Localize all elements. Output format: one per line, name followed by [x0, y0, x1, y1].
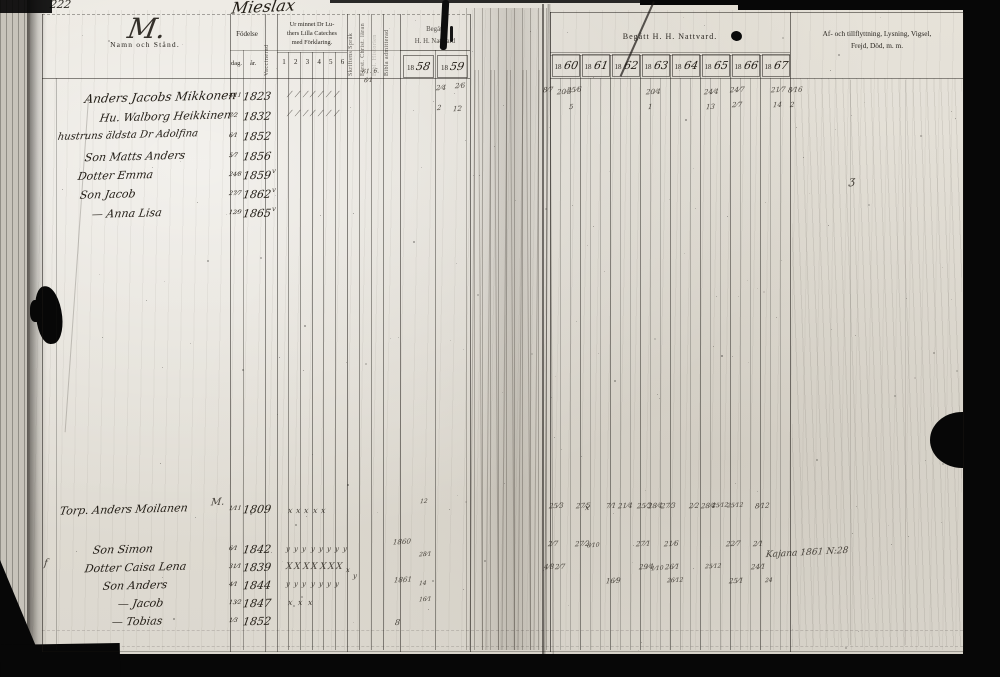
- scan-corner-top-left: [0, 0, 52, 13]
- paper-speck: [693, 168, 694, 169]
- person-name: Son Simon: [92, 542, 154, 557]
- register-row: Torp. Anders Moilanen1⁄111809: [0, 503, 470, 521]
- paper-speck: [614, 380, 616, 382]
- paper-speck: [568, 605, 569, 606]
- handwritten-mark: 1861: [394, 576, 413, 585]
- paper-speck: [353, 213, 354, 214]
- person-name: Anders Jacobs Mikkonen: [84, 88, 238, 106]
- handwritten-mark: 61. 6.: [362, 68, 380, 76]
- handwritten-mark: 1860: [393, 538, 412, 547]
- handwritten-mark: 25⁄3: [549, 502, 564, 511]
- year-printed-prefix: 18: [705, 63, 712, 71]
- paper-speck: [757, 491, 758, 492]
- handwritten-mark: 27⁄1: [636, 540, 651, 549]
- birth-day-subheader: dag.: [231, 60, 242, 67]
- register-row: Son Jacob27⁄71862: [0, 188, 470, 206]
- handwritten-mark: 2⁄7: [548, 540, 559, 549]
- handwritten-mark: 22⁄7: [726, 540, 741, 549]
- paper-speck: [695, 208, 696, 209]
- column-line: [780, 78, 781, 650]
- handwritten-mark: 13: [706, 103, 716, 111]
- birth-year-subheader: år.: [250, 60, 256, 67]
- rule-line: [42, 651, 963, 652]
- person-name: Son Anders: [102, 578, 168, 593]
- paper-speck: [554, 437, 555, 438]
- paper-speck: [473, 175, 474, 176]
- paper-speck: [109, 102, 110, 103]
- paper-speck: [146, 300, 147, 301]
- paper-speck: [494, 146, 495, 147]
- handwritten-mark: X: [302, 562, 309, 572]
- paper-speck: [855, 335, 856, 336]
- handwritten-mark: f: [44, 558, 49, 569]
- rule-line: [277, 52, 347, 53]
- handwritten-mark: x: [296, 506, 301, 515]
- year-cell: 1861: [582, 54, 610, 77]
- birth-year: 1852: [242, 130, 272, 144]
- year-printed-prefix: 18: [615, 63, 622, 71]
- binder-clip-left-tail: [30, 300, 42, 322]
- handwritten-mark: 2: [790, 101, 795, 109]
- register-row: Anders Jacobs Mikkonen4⁄111823: [0, 90, 470, 108]
- column-line: [580, 55, 581, 650]
- register-row: Son Matts Anders5⁄71856: [0, 150, 470, 168]
- handwritten-mark: 26⁄12: [667, 577, 684, 585]
- paper-speck: [479, 175, 480, 176]
- person-name: — Tobias: [111, 614, 164, 628]
- paper-speck: [421, 167, 422, 168]
- handwritten-mark: 21⁄4: [618, 502, 633, 511]
- paper-speck: [336, 567, 337, 568]
- year-handwritten-digits: 63: [652, 56, 670, 76]
- paper-speck: [282, 561, 283, 562]
- year-handwritten-digits: 67: [772, 56, 790, 76]
- communion-column-header-right: Begått H. H. Nattvard.: [560, 32, 780, 41]
- birth-day: 7⁄2: [228, 112, 238, 119]
- paper-speck: [659, 398, 660, 399]
- scanned-register-page: 222 Mieslax M. Namn och Stånd. Födelse d…: [0, 0, 1000, 677]
- handwritten-mark: 16⁄9: [606, 577, 621, 586]
- handwritten-mark: y: [327, 580, 332, 588]
- handwritten-mark: y: [353, 572, 358, 580]
- birth-day: 12⁄9: [228, 209, 242, 216]
- handwritten-mark: 5: [569, 103, 574, 111]
- handwritten-mark: 6⁄1: [364, 77, 373, 84]
- column-line: [905, 80, 906, 645]
- handwritten-mark: x: [298, 598, 303, 607]
- paper-speck: [275, 195, 276, 196]
- column-line: [640, 55, 641, 650]
- paper-speck: [162, 367, 163, 368]
- rule-line: [400, 50, 470, 51]
- paper-speck: [704, 25, 705, 26]
- paper-speck: [551, 397, 552, 398]
- register-row: Dotter Emma24⁄81859: [0, 169, 470, 187]
- paper-speck: [894, 395, 896, 397]
- column-line: [770, 78, 771, 650]
- handwritten-mark: 27⁄3: [661, 502, 676, 511]
- birth-day: 27⁄7: [228, 190, 242, 197]
- year-cell: 1865: [702, 54, 730, 77]
- paper-speck: [920, 135, 922, 137]
- handwritten-mark: 28⁄1: [419, 551, 432, 559]
- paper-speck: [456, 263, 457, 264]
- paper-speck: [413, 241, 415, 243]
- handwritten-mark: y: [327, 545, 332, 553]
- rotated-column-header: Först. Christ. läran: [360, 16, 366, 76]
- register-row: — Anna Lisa12⁄91865: [0, 207, 470, 225]
- handwritten-mark: 24⁄1: [751, 563, 766, 572]
- handwritten-mark: x: [288, 598, 293, 607]
- removals-column-header: Af- och tillflyttning, Lysning, Vigsel, …: [797, 28, 957, 53]
- birth-column-header: Födelse: [228, 30, 266, 38]
- year-handwritten-digits: 60: [562, 56, 580, 76]
- handwritten-mark: x: [308, 598, 313, 607]
- paper-speck: [868, 204, 870, 206]
- year-handwritten-digits: 58: [414, 57, 432, 77]
- paper-speck: [645, 490, 646, 491]
- handwritten-mark: 2⁄2: [689, 502, 700, 511]
- handwritten-mark: x: [304, 506, 309, 515]
- birth-year: 1832: [242, 110, 272, 124]
- rule-line: [550, 78, 963, 79]
- paper-speck: [180, 161, 181, 162]
- year-printed-prefix: 18: [441, 64, 448, 72]
- column-line: [620, 78, 621, 650]
- handwritten-mark: y: [286, 580, 291, 588]
- column-line: [590, 78, 591, 650]
- handwritten-mark: 8: [395, 618, 401, 627]
- paper-speck: [747, 280, 748, 281]
- year-cell: 1860: [552, 54, 580, 77]
- rule-line: [42, 14, 470, 15]
- birth-day: 1⁄3: [228, 617, 238, 624]
- year-printed-prefix: 18: [407, 64, 414, 72]
- fold-line-1: [542, 4, 544, 654]
- paper-speck: [277, 414, 278, 415]
- birth-day: 6⁄1: [228, 545, 238, 552]
- scan-edge-top-mid: [640, 0, 740, 5]
- paper-speck: [260, 257, 262, 259]
- person-name: Dotter Caisa Lena: [84, 560, 188, 576]
- paper-speck: [763, 291, 765, 293]
- paper-speck: [735, 483, 736, 484]
- handwritten-mark: x: [288, 506, 293, 515]
- handwritten-mark: 14: [419, 580, 427, 587]
- handwritten-mark: 20⁄4: [646, 88, 661, 97]
- rotated-column-header: Bibla admitterad: [384, 16, 390, 76]
- column-line: [850, 80, 851, 645]
- birth-year: 1859: [242, 169, 272, 183]
- handwritten-mark: x: [585, 503, 590, 512]
- handwritten-mark: 8⁄10: [587, 542, 600, 550]
- handwritten-mark: X: [311, 562, 318, 572]
- handwritten-mark: 7⁄1: [606, 502, 617, 511]
- year-handwritten-digits: 61: [592, 56, 610, 76]
- handwritten-mark: 12: [420, 498, 428, 505]
- year-cell: 1867: [762, 54, 790, 77]
- handwritten-mark: 2⁄7: [555, 563, 566, 572]
- handwritten-mark: y: [310, 545, 315, 553]
- paper-speck: [638, 650, 639, 651]
- catechism-subcolumn-number: 2: [290, 58, 301, 66]
- year-printed-prefix: 18: [555, 63, 562, 71]
- register-row: hustruns äldsta Dr Adolfina6⁄11852: [0, 130, 470, 148]
- paper-speck: [304, 325, 306, 327]
- handwritten-mark: y: [318, 580, 323, 588]
- binder-clip-right: [930, 412, 1000, 468]
- handwritten-mark: v: [272, 205, 277, 213]
- birth-day: 6⁄1: [228, 132, 238, 139]
- catechism-column-header: Ur minnet Dr Lu- thers Lilla Cateches me…: [277, 20, 347, 47]
- catechism-subcolumn-number: 6: [337, 58, 348, 66]
- handwritten-mark: 25⁄12: [705, 563, 722, 571]
- column-line: [550, 12, 551, 652]
- birth-year: 1865: [242, 207, 272, 221]
- catechism-subcolumn-number: 3: [302, 58, 313, 66]
- handwritten-mark: 24: [765, 577, 773, 584]
- handwritten-mark: 24⁄7: [730, 86, 745, 95]
- paper-speck: [433, 101, 434, 102]
- paper-speck: [449, 509, 450, 510]
- person-name: Dotter Emma: [77, 168, 154, 183]
- year-handwritten-digits: 59: [448, 57, 466, 77]
- handwritten-mark: 16⁄1: [419, 596, 432, 604]
- paper-speck: [415, 20, 416, 21]
- handwritten-mark: 8⁄12: [755, 502, 770, 511]
- column-line: [760, 55, 761, 650]
- birth-day: 24⁄8: [228, 171, 242, 178]
- paper-speck: [450, 340, 451, 341]
- birth-year: 1856: [242, 150, 272, 164]
- person-name: Hu. Walborg Heikkinen: [99, 108, 232, 124]
- paper-speck: [112, 136, 113, 137]
- register-row: — Jacob13⁄21847: [0, 597, 470, 615]
- handwritten-mark: 1: [648, 103, 653, 111]
- paper-speck: [164, 281, 165, 282]
- rule-line: [42, 78, 470, 79]
- paper-speck: [845, 647, 847, 649]
- handwritten-mark: 25⁄12: [727, 502, 744, 510]
- scan-edge-right: [963, 0, 1000, 677]
- handwritten-mark: 14: [773, 101, 783, 109]
- birth-year: 1823: [242, 90, 272, 104]
- scan-edge-top-right: [738, 0, 1000, 10]
- birth-year: 1844: [242, 579, 272, 593]
- year-cell: 1858: [403, 55, 434, 78]
- paper-speck: [543, 570, 544, 571]
- paper-speck: [654, 338, 656, 340]
- column-line: [610, 55, 611, 650]
- rule-line: [550, 12, 963, 13]
- birth-year: 1862: [242, 188, 272, 202]
- person-name: hustruns äldsta Dr Adolfina: [57, 128, 199, 143]
- name-column-header: Namn och Stånd.: [75, 40, 215, 49]
- column-line: [630, 78, 631, 650]
- year-cell: 1866: [732, 54, 760, 77]
- birth-year: 1847: [242, 597, 272, 611]
- handwritten-mark: X: [286, 562, 293, 572]
- paper-speck: [530, 31, 531, 32]
- birth-year: 1809: [242, 503, 272, 517]
- paper-speck: [253, 159, 254, 160]
- handwritten-mark: 2: [437, 104, 442, 112]
- handwritten-mark: M.: [210, 497, 224, 509]
- year-printed-prefix: 18: [585, 63, 592, 71]
- year-cell: 1859: [437, 55, 468, 78]
- person-name: — Anna Lisa: [91, 206, 163, 221]
- year-cell: 1864: [672, 54, 700, 77]
- paper-speck: [657, 394, 658, 395]
- handwritten-mark: ⁄: [304, 90, 306, 99]
- birth-day: 13⁄2: [228, 599, 242, 606]
- handwritten-mark: 21⁄6: [664, 540, 679, 549]
- register-row: Hu. Walborg Heikkinen7⁄21832: [0, 110, 470, 128]
- birth-year: 1842: [242, 543, 272, 557]
- year-cell: 1863: [642, 54, 670, 77]
- birth-day: 4⁄1: [228, 581, 238, 588]
- paper-speck: [891, 544, 892, 545]
- column-line: [670, 55, 671, 650]
- paper-speck: [253, 95, 254, 96]
- handwritten-mark: 2⁄6: [455, 82, 466, 91]
- handwritten-mark: 8⁄7: [543, 86, 554, 95]
- paper-speck: [99, 274, 100, 275]
- catechism-subcolumn-number: 1: [279, 58, 290, 66]
- paper-speck: [738, 296, 739, 297]
- paper-speck: [955, 118, 956, 119]
- handwritten-mark: v: [272, 167, 277, 175]
- paper-speck: [504, 483, 505, 484]
- column-line: [963, 12, 964, 652]
- paper-speck: [312, 454, 313, 455]
- person-name: Son Jacob: [79, 187, 137, 201]
- column-line: [570, 78, 571, 650]
- birth-day: 5⁄7: [228, 152, 238, 159]
- year-handwritten-digits: 65: [712, 56, 730, 76]
- person-name: — Jacob: [117, 596, 164, 610]
- scan-corner-bottom-left-2: [0, 643, 120, 677]
- handwritten-mark: 2⁄4: [436, 84, 447, 93]
- handwritten-mark: y: [318, 545, 323, 553]
- paper-speck: [226, 214, 227, 215]
- column-line: [730, 55, 731, 650]
- handwritten-mark: ⁄: [304, 109, 306, 118]
- person-name: Son Matts Anders: [84, 149, 186, 165]
- birth-day: 4⁄11: [228, 92, 242, 99]
- paper-speck: [914, 377, 916, 379]
- paper-speck: [604, 271, 605, 272]
- paper-speck: [413, 110, 414, 111]
- paper-speck: [716, 296, 717, 297]
- handwritten-mark: x: [312, 506, 317, 515]
- year-handwritten-digits: 66: [742, 56, 760, 76]
- paper-speck: [942, 267, 943, 268]
- handwritten-mark: x: [346, 566, 351, 574]
- year-printed-prefix: 18: [765, 63, 772, 71]
- column-line: [600, 78, 601, 650]
- handwritten-mark: ʒ: [848, 174, 855, 187]
- rotated-column-header: Skriftens Språk: [348, 16, 354, 76]
- year-handwritten-digits: 64: [682, 56, 700, 76]
- year-printed-prefix: 18: [735, 63, 742, 71]
- handwritten-mark: X: [319, 562, 326, 572]
- year-printed-prefix: 18: [645, 63, 652, 71]
- paper-speck: [182, 44, 183, 45]
- ink-smudge-gutter-top-2: [450, 26, 453, 42]
- year-handwritten-digits: 62: [622, 56, 640, 76]
- paper-speck: [160, 463, 161, 464]
- handwritten-mark: 8⁄16: [788, 86, 803, 95]
- handwritten-mark: 4⁄8: [544, 563, 555, 572]
- paper-speck: [439, 41, 440, 42]
- birth-year: 1839: [242, 561, 272, 575]
- right-margin-scratches: [792, 78, 962, 646]
- paper-speck: [463, 589, 464, 590]
- birth-day: 31⁄1: [228, 563, 242, 570]
- column-line: [690, 78, 691, 650]
- handwritten-mark: x: [320, 506, 325, 515]
- paper-speck: [858, 631, 859, 632]
- paper-speck: [685, 119, 687, 121]
- paper-speck: [727, 216, 728, 217]
- year-cell: 1862: [612, 54, 640, 77]
- catechism-subcolumn-number: 5: [325, 58, 336, 66]
- paper-speck: [289, 646, 290, 647]
- handwritten-mark: 25⁄1: [729, 577, 744, 586]
- communion-column-header-left: Begått H. H. Nattvard: [400, 24, 470, 48]
- handwritten-mark: 2⁄7: [732, 101, 743, 110]
- handwritten-mark: y: [286, 545, 291, 553]
- paper-speck: [906, 298, 907, 299]
- handwritten-mark: 21⁄7: [771, 86, 786, 95]
- handwritten-mark: X: [328, 562, 335, 572]
- handwritten-mark: v: [272, 186, 277, 194]
- handwritten-mark: 2⁄1: [753, 540, 764, 549]
- handwritten-mark: y: [310, 580, 315, 588]
- paper-speck: [515, 200, 516, 201]
- scan-edge-bottom: [0, 654, 1000, 677]
- birth-year: 1852: [242, 615, 272, 629]
- paper-speck: [377, 512, 378, 513]
- paper-speck: [757, 288, 758, 289]
- handwritten-mark: 26⁄1: [665, 563, 680, 572]
- paper-speck: [721, 355, 723, 357]
- catechism-subcolumn-number: 4: [314, 58, 325, 66]
- column-line: [740, 78, 741, 650]
- handwritten-mark: 25⁄6: [567, 86, 582, 95]
- birth-day: 1⁄11: [228, 505, 242, 512]
- page-number: 222: [49, 0, 72, 11]
- handwritten-mark: 1⁄10: [651, 565, 664, 573]
- paper-speck: [190, 343, 191, 344]
- year-printed-prefix: 18: [675, 63, 682, 71]
- scan-edge-top-thin: [330, 0, 642, 3]
- column-line: [700, 55, 701, 650]
- person-name: Torp. Anders Moilanen: [59, 501, 189, 517]
- rule-line: [550, 52, 790, 53]
- paper-speck: [765, 202, 766, 203]
- paper-speck: [598, 353, 599, 354]
